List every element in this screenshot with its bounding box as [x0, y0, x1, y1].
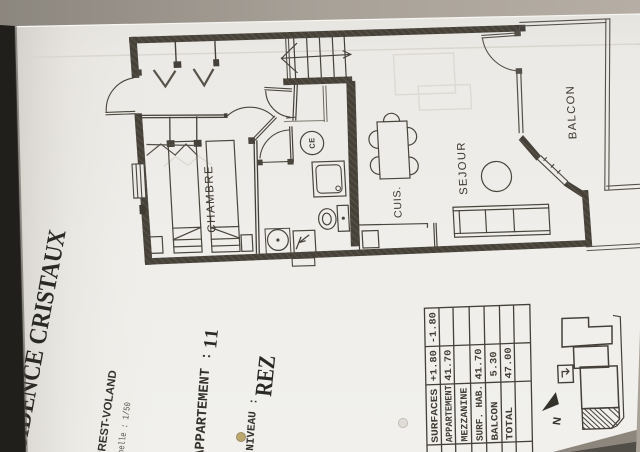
svg-text:+1.80: +1.80: [428, 350, 440, 382]
svg-text:MEZZANINE: MEZZANINE: [459, 387, 471, 442]
svg-text:11: 11: [200, 326, 223, 349]
svg-text:CE: CE: [307, 137, 317, 149]
svg-text:TOTAL: TOTAL: [504, 406, 516, 440]
svg-text:41.70: 41.70: [473, 348, 485, 380]
svg-text:SURF. HAB.: SURF. HAB.: [474, 385, 486, 441]
svg-text:-1.80: -1.80: [427, 312, 439, 344]
svg-text:47.00: 47.00: [503, 347, 515, 379]
svg-text:41.70: 41.70: [442, 349, 454, 381]
svg-text:5.30: 5.30: [488, 351, 499, 377]
svg-text:APPARTEMENT: APPARTEMENT: [443, 385, 455, 443]
svg-text:CUIS.: CUIS.: [391, 186, 405, 218]
svg-text:SURFACES: SURFACES: [429, 388, 441, 443]
svg-text:REZ: REZ: [251, 354, 281, 397]
svg-text:BALCON: BALCON: [489, 401, 501, 441]
